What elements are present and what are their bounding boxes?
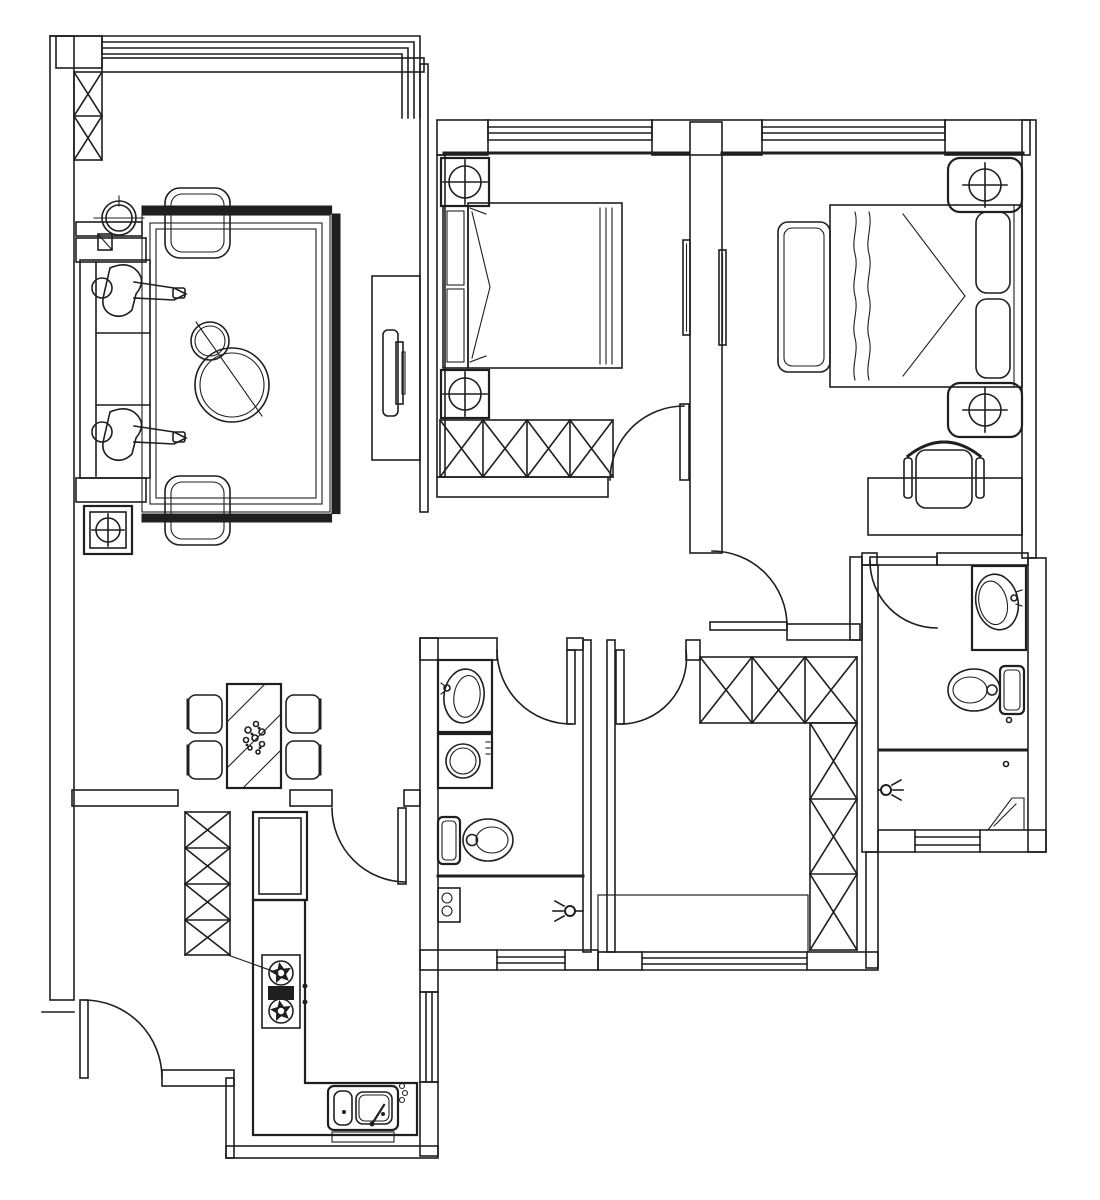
shower-head [553, 901, 583, 921]
hatched-column [74, 72, 102, 160]
nightstand [948, 158, 1022, 212]
hatched-cabinet [185, 812, 230, 955]
window-second-bedroom [488, 120, 652, 140]
wardrobe-top-row [700, 657, 857, 723]
coffee-tables [191, 322, 269, 422]
door [610, 404, 689, 480]
door [497, 650, 575, 724]
nightstand [441, 158, 489, 206]
bed [830, 205, 1022, 387]
office-chair [904, 441, 984, 508]
wardrobe-right-column [810, 723, 857, 950]
small-bathroom [438, 650, 583, 922]
seated-figure [92, 409, 186, 460]
dining-chair [286, 741, 320, 779]
entry-door [80, 1000, 162, 1078]
balcony-railing [50, 36, 420, 118]
nightstand [948, 383, 1022, 437]
desk [868, 478, 1022, 535]
bathroom [870, 557, 1026, 830]
dining-chair [188, 695, 222, 733]
windows [420, 120, 980, 1082]
fridge-cabinet [253, 812, 307, 900]
floor-lamp [84, 506, 132, 554]
window-dressing-room [642, 952, 807, 970]
bed [443, 203, 622, 368]
washing-machine [438, 734, 492, 788]
dining-chair [188, 741, 222, 779]
second-bedroom [440, 158, 690, 480]
wall-panel [683, 240, 690, 335]
kitchen [228, 808, 417, 1142]
toilet [438, 817, 513, 864]
window-bathroom [915, 830, 980, 852]
shower-head [878, 780, 903, 800]
tiled-floor [598, 895, 808, 952]
seated-figure [92, 265, 186, 316]
gas-hob [262, 955, 308, 1028]
nightstand [441, 370, 489, 418]
living-room [50, 36, 420, 554]
corner-shelf [438, 888, 460, 922]
door [710, 551, 787, 630]
toilet [948, 666, 1024, 723]
table-centerpiece [244, 722, 266, 755]
door [870, 557, 937, 628]
rug [142, 210, 336, 518]
floor-plan [0, 0, 1100, 1200]
window-kitchen [420, 992, 438, 1082]
master-bedroom [710, 158, 1022, 630]
wall-panel [719, 250, 726, 345]
dressing-room [598, 650, 857, 952]
entry-hall [80, 812, 230, 1078]
vanity-sink [438, 660, 492, 732]
wardrobe [440, 420, 613, 477]
vanity-sink [971, 566, 1026, 650]
door [332, 808, 406, 884]
floor-drain [1004, 762, 1009, 767]
door [616, 650, 686, 724]
kitchen-sink [328, 1084, 408, 1143]
corner-tray [988, 798, 1024, 830]
dining-chair [286, 695, 320, 733]
window-master-bedroom [762, 120, 945, 140]
bench [778, 222, 830, 372]
ottoman [165, 476, 230, 545]
plant [94, 196, 144, 250]
dining-area [188, 684, 320, 788]
window-small-bathroom [497, 950, 565, 970]
tv [383, 330, 405, 416]
